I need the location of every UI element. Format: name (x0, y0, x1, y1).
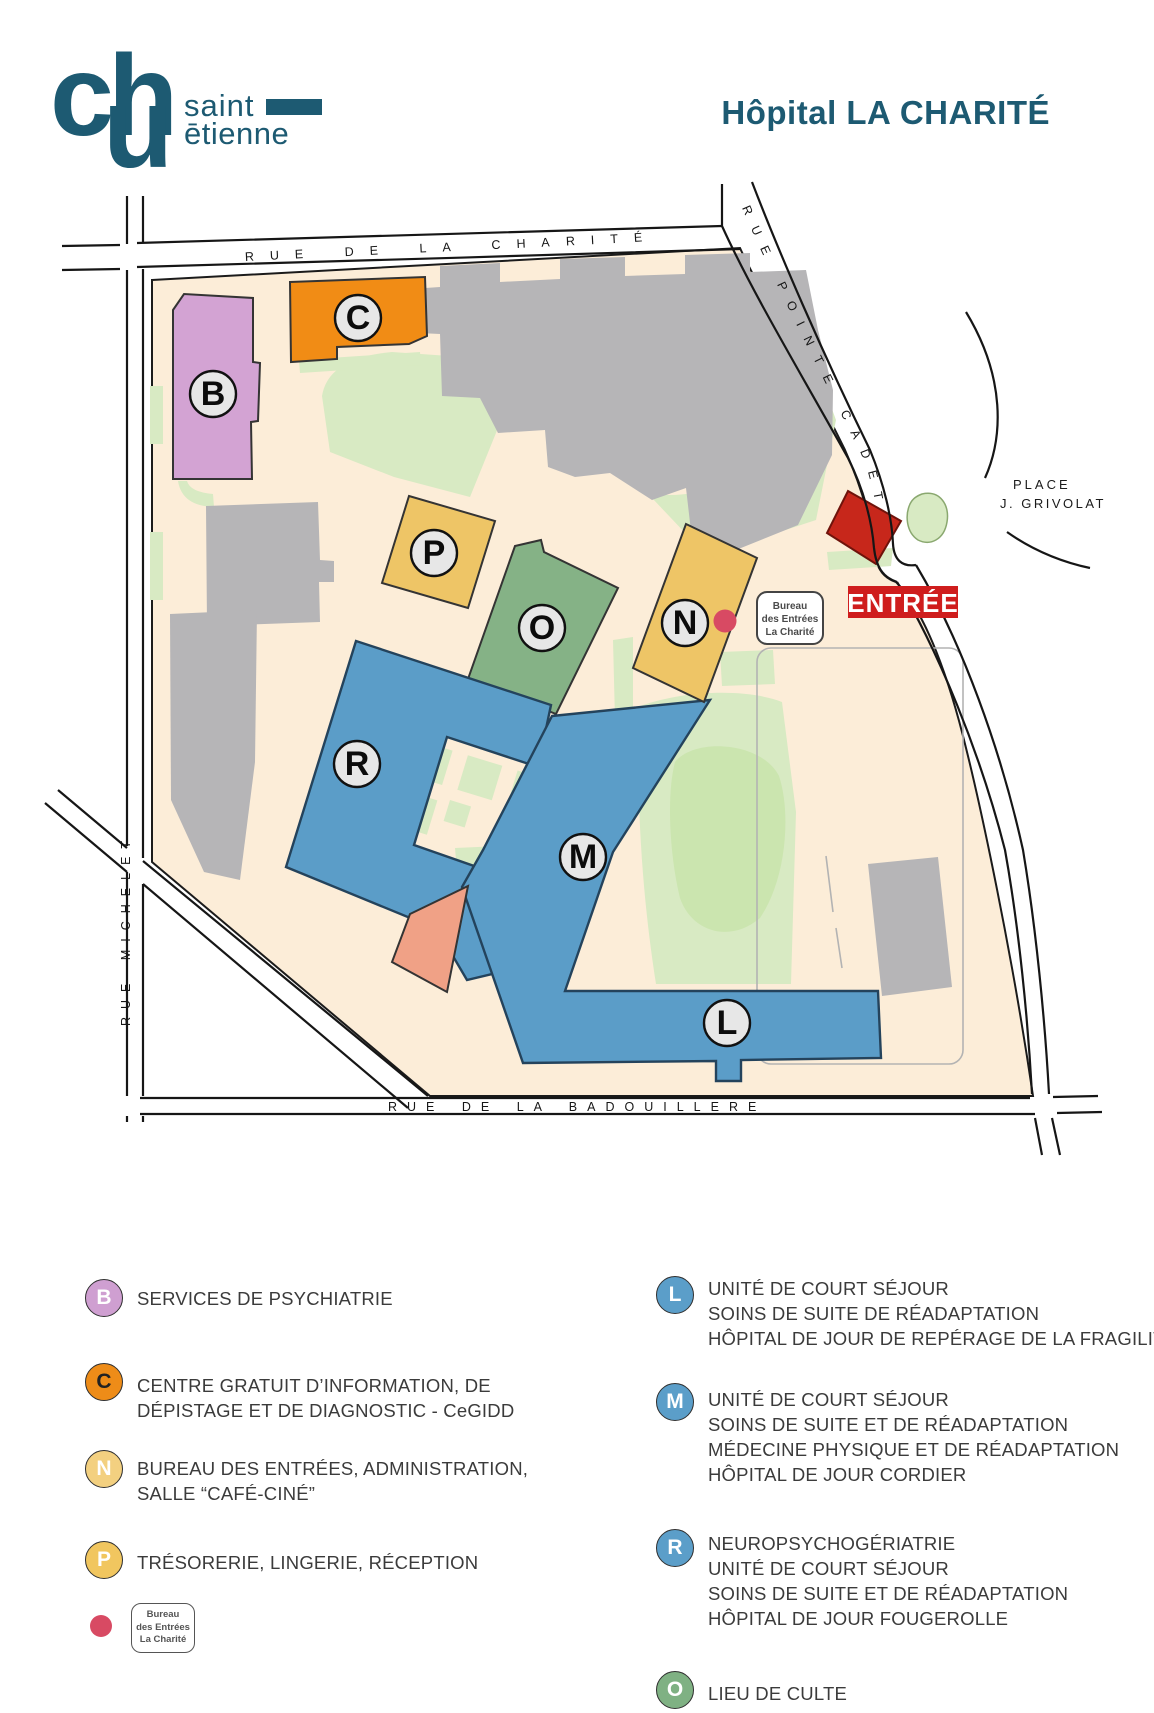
legend-badge-p: P (85, 1541, 123, 1579)
legend-item-m: M UNITÉ DE COURT SÉJOUR SOINS DE SUITE E… (656, 1383, 1119, 1487)
svg-text:M: M (569, 838, 597, 876)
bureau-line1: Bureau (773, 601, 807, 612)
place-label-line2: J. GRIVOLAT (1000, 496, 1106, 511)
legend-text-p: TRÉSORERIE, LINGERIE, RÉCEPTION (137, 1550, 478, 1575)
svg-text:N: N (673, 604, 698, 642)
legend-badge-c: C (85, 1363, 123, 1401)
legend-item-b: B SERVICES DE PSYCHIATRIE (85, 1279, 393, 1317)
legend-item-n: N BUREAU DES ENTRÉES, ADMINISTRATION, SA… (85, 1450, 528, 1506)
legend-badge-m: M (656, 1383, 694, 1421)
svg-text:O: O (529, 609, 555, 647)
svg-text:R: R (345, 745, 370, 783)
svg-text:C: C (346, 299, 371, 337)
legend-item-l: L UNITÉ DE COURT SÉJOUR SOINS DE SUITE D… (656, 1276, 1154, 1351)
building-badge-b: B (190, 371, 236, 417)
legend-badge-o: O (656, 1671, 694, 1709)
entrance-marker-dot (714, 610, 737, 633)
legend-item-o: O LIEU DE CULTE (656, 1671, 847, 1709)
legend-text-o: LIEU DE CULTE (708, 1681, 847, 1706)
bureau-line2: des Entrées (762, 614, 819, 625)
legend-text-n: BUREAU DES ENTRÉES, ADMINISTRATION, SALL… (137, 1456, 528, 1506)
legend-badge-b: B (85, 1279, 123, 1317)
legend-marker-box: Bureau des Entrées La Charité (131, 1603, 195, 1653)
bureau-line3: La Charité (766, 627, 815, 638)
legend-badge-n: N (85, 1450, 123, 1488)
page: ch u saint ētienne Hôpital LA CHARITÉ (0, 0, 1154, 1713)
legend-text-b: SERVICES DE PSYCHIATRIE (137, 1286, 393, 1311)
legend-text-c: CENTRE GRATUIT D’INFORMATION, DE DÉPISTA… (137, 1373, 514, 1423)
svg-text:L: L (717, 1004, 738, 1042)
street-label-michelet: RUE MICHELET (119, 833, 133, 1026)
legend-item-p: P TRÉSORERIE, LINGERIE, RÉCEPTION (85, 1541, 478, 1579)
svg-text:B: B (201, 375, 226, 413)
green-strip (150, 532, 163, 600)
green-teardrop (907, 493, 947, 542)
legend-badge-l: L (656, 1276, 694, 1314)
legend-text-m: UNITÉ DE COURT SÉJOUR SOINS DE SUITE ET … (708, 1387, 1119, 1487)
green-patch (720, 650, 775, 686)
legend-badge-r: R (656, 1529, 694, 1567)
building-badge-n: N (662, 600, 708, 646)
entrance-label: ENTRÉE (847, 588, 958, 618)
svg-text:P: P (423, 534, 446, 572)
legend-item-r: R NEUROPSYCHOGÉRIATRIE UNITÉ DE COURT SÉ… (656, 1529, 1068, 1631)
gray-building (868, 857, 952, 996)
street-label-badouillere: RUE DE LA BADOUILLERE (388, 1100, 766, 1114)
legend-text-l: UNITÉ DE COURT SÉJOUR SOINS DE SUITE DE … (708, 1276, 1154, 1351)
green-strip (150, 386, 163, 444)
legend-text-r: NEUROPSYCHOGÉRIATRIE UNITÉ DE COURT SÉJO… (708, 1531, 1068, 1631)
building-badge-r: R (334, 741, 380, 787)
building-badge-l: L (704, 1000, 750, 1046)
building-badge-o: O (519, 605, 565, 651)
gray-building (206, 502, 334, 626)
building-badge-p: P (411, 530, 457, 576)
place-label-line1: PLACE (1013, 477, 1071, 492)
building-badge-c: C (335, 295, 381, 341)
legend-item-c: C CENTRE GRATUIT D’INFORMATION, DE DÉPIS… (85, 1363, 514, 1423)
legend-marker-dot (90, 1615, 112, 1637)
building-badge-m: M (560, 834, 606, 880)
